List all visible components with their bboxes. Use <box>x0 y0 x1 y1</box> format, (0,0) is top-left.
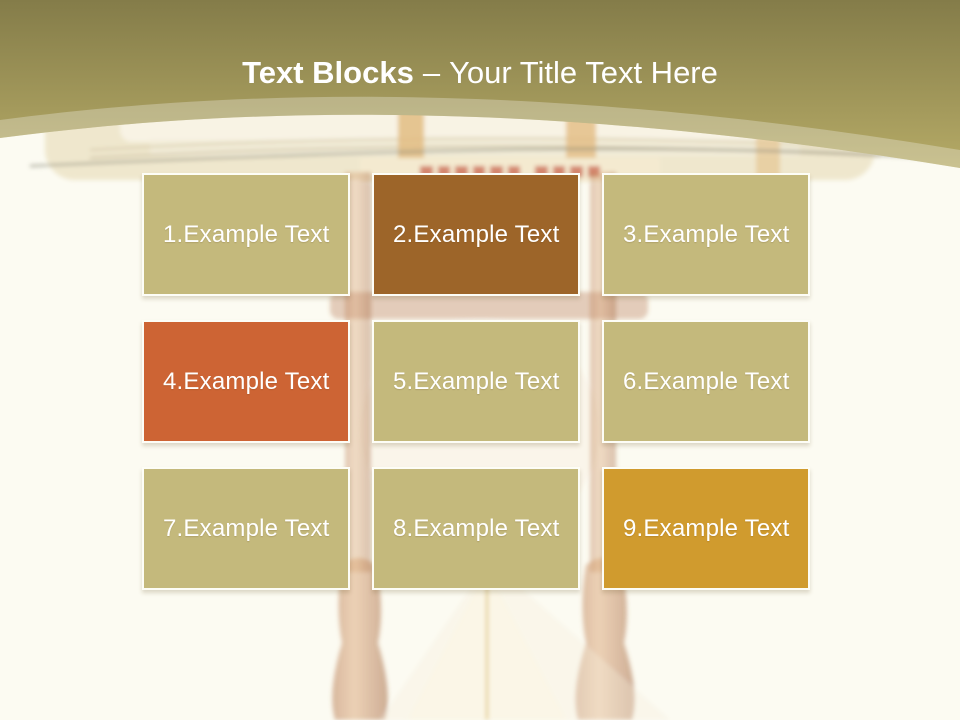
title-emphasis: Text Blocks <box>242 55 414 90</box>
text-block-5[interactable]: 5.Example Text <box>372 320 580 443</box>
text-block-label: 1.Example Text <box>163 221 329 249</box>
slide-canvas: Text Blocks–Your Title Text Here 1.Examp… <box>0 0 960 720</box>
text-block-6[interactable]: 6.Example Text <box>602 320 810 443</box>
text-block-label: 7.Example Text <box>163 515 329 543</box>
text-blocks-grid: 1.Example Text 2.Example Text 3.Example … <box>142 173 810 590</box>
text-block-label: 6.Example Text <box>623 368 789 396</box>
text-block-7[interactable]: 7.Example Text <box>142 467 350 590</box>
text-block-3[interactable]: 3.Example Text <box>602 173 810 296</box>
slide-title: Text Blocks–Your Title Text Here <box>0 52 960 94</box>
text-block-label: 5.Example Text <box>393 368 559 396</box>
text-block-8[interactable]: 8.Example Text <box>372 467 580 590</box>
text-block-4[interactable]: 4.Example Text <box>142 320 350 443</box>
title-separator: – <box>423 55 440 90</box>
text-block-9[interactable]: 9.Example Text <box>602 467 810 590</box>
text-block-label: 8.Example Text <box>393 515 559 543</box>
text-block-label: 4.Example Text <box>163 368 329 396</box>
text-block-2[interactable]: 2.Example Text <box>372 173 580 296</box>
text-block-label: 9.Example Text <box>623 515 789 543</box>
title-subtitle: Your Title Text Here <box>449 55 718 90</box>
text-block-label: 2.Example Text <box>393 221 559 249</box>
text-block-1[interactable]: 1.Example Text <box>142 173 350 296</box>
text-block-label: 3.Example Text <box>623 221 789 249</box>
header-band <box>0 0 960 200</box>
